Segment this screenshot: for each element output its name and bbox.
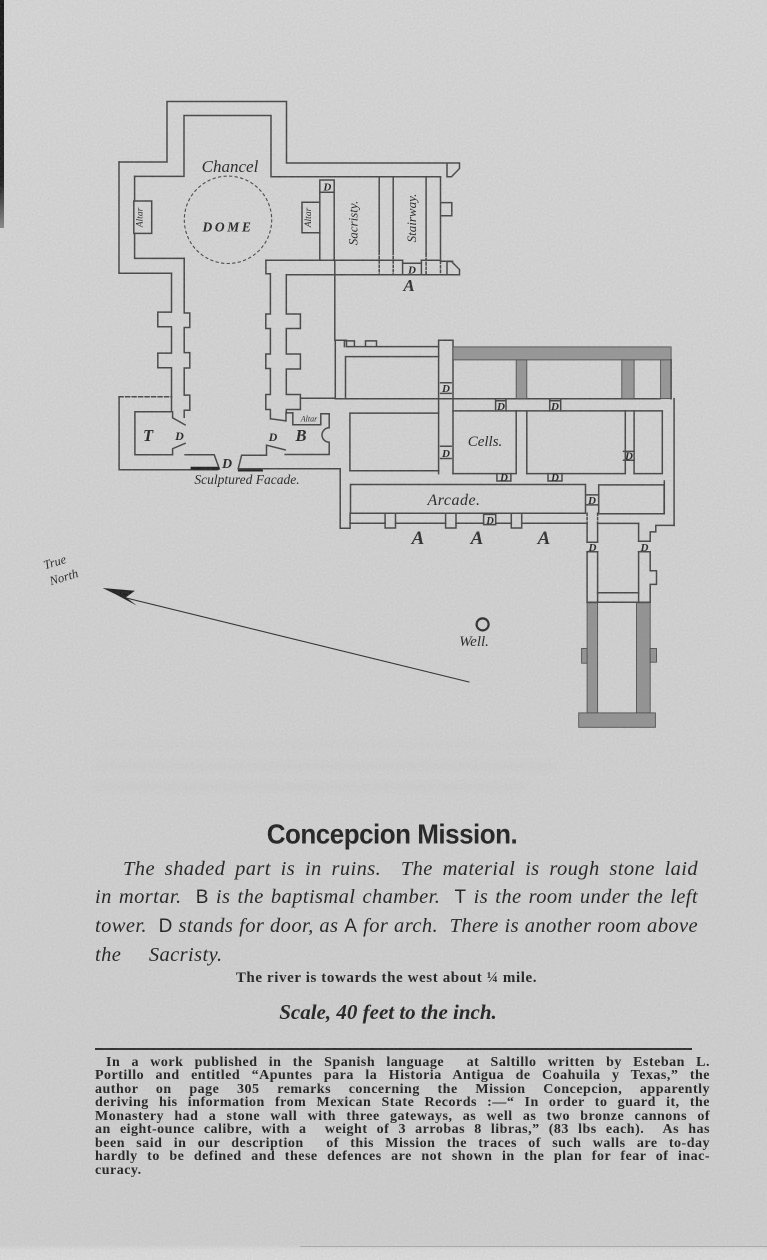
svg-text:D: D: [588, 542, 597, 554]
svg-text:D: D: [407, 265, 416, 277]
svg-text:Altar: Altar: [304, 207, 314, 228]
svg-text:D: D: [640, 542, 649, 554]
svg-text:D: D: [499, 472, 508, 484]
svg-text:Chancel: Chancel: [202, 157, 259, 176]
svg-text:DOME: DOME: [202, 220, 254, 235]
svg-text:T: T: [143, 426, 154, 445]
svg-text:D: D: [624, 451, 633, 463]
svg-text:D: D: [485, 516, 494, 527]
svg-text:D: D: [441, 448, 450, 460]
svg-text:B: B: [294, 426, 306, 445]
svg-text:D: D: [550, 401, 559, 413]
svg-text:D: D: [174, 429, 184, 443]
svg-text:Sacristy.: Sacristy.: [346, 201, 361, 245]
svg-text:Stairway.: Stairway.: [404, 194, 419, 243]
svg-text:Altar: Altar: [300, 415, 318, 424]
svg-text:D: D: [496, 401, 505, 413]
svg-text:D: D: [587, 495, 596, 507]
svg-text:D: D: [550, 472, 559, 484]
svg-text:D: D: [268, 430, 278, 444]
svg-text:Arcade.: Arcade.: [426, 492, 480, 509]
svg-text:Altar: Altar: [136, 207, 146, 228]
svg-text:A: A: [537, 528, 551, 549]
svg-text:A: A: [402, 276, 414, 295]
svg-text:D: D: [221, 457, 232, 472]
svg-text:D: D: [322, 182, 331, 194]
svg-text:A: A: [411, 528, 425, 549]
svg-text:Cells.: Cells.: [468, 434, 503, 450]
svg-text:D: D: [441, 383, 450, 395]
svg-text:Sculptured Facade.: Sculptured Facade.: [194, 472, 299, 487]
svg-text:Well.: Well.: [459, 634, 489, 650]
svg-text:A: A: [470, 528, 484, 549]
